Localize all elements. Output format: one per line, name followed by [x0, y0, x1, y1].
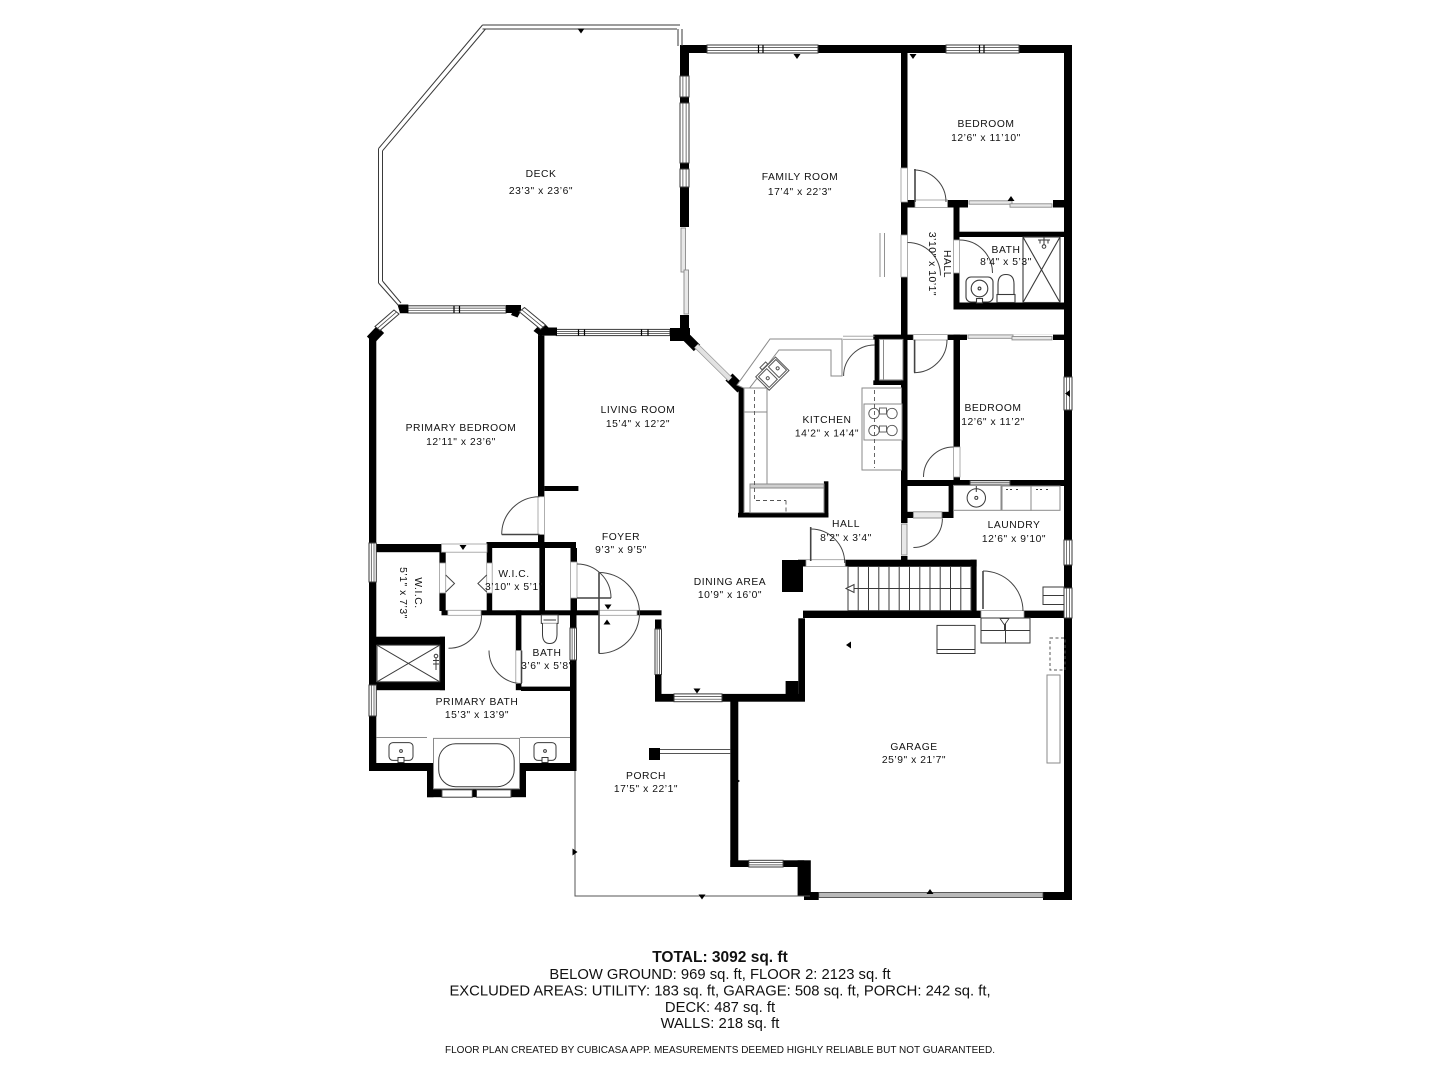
- svg-text:BATH: BATH: [533, 648, 562, 659]
- svg-text:FOYER: FOYER: [602, 532, 640, 543]
- svg-text:GARAGE: GARAGE: [890, 742, 937, 753]
- svg-text:12’11" x 23’6": 12’11" x 23’6": [426, 437, 496, 448]
- svg-text:W.I.C.: W.I.C.: [412, 577, 423, 608]
- svg-text:HALL: HALL: [941, 250, 952, 278]
- svg-text:15’4" x 12’2": 15’4" x 12’2": [606, 419, 670, 430]
- svg-text:WALLS: 218 sq. ft: WALLS: 218 sq. ft: [661, 1016, 780, 1032]
- svg-text:12’6" x 11’2": 12’6" x 11’2": [961, 417, 1025, 428]
- svg-text:17’4" x 22’3": 17’4" x 22’3": [768, 187, 832, 198]
- svg-text:14’2" x 14’4": 14’2" x 14’4": [795, 429, 859, 440]
- svg-text:BEDROOM: BEDROOM: [964, 403, 1021, 414]
- svg-text:BELOW GROUND: 969 sq. ft, FLOO: BELOW GROUND: 969 sq. ft, FLOOR 2: 2123 …: [549, 967, 890, 983]
- svg-text:10’9" x 16’0": 10’9" x 16’0": [698, 590, 762, 601]
- svg-text:5’1" x 7’3": 5’1" x 7’3": [397, 567, 408, 619]
- svg-text:9’3" x 9’5": 9’3" x 9’5": [595, 545, 647, 556]
- svg-text:3’6" x 5’8": 3’6" x 5’8": [521, 661, 573, 672]
- svg-text:W.I.C.: W.I.C.: [498, 569, 529, 580]
- svg-text:EXCLUDED AREAS: UTILITY: 183 s: EXCLUDED AREAS: UTILITY: 183 sq. ft, GAR…: [449, 984, 990, 1000]
- svg-text:PORCH: PORCH: [626, 771, 666, 782]
- svg-text:8’4" x 5’3": 8’4" x 5’3": [980, 257, 1032, 268]
- svg-text:3’10" x 5’1": 3’10" x 5’1": [485, 582, 543, 593]
- svg-text:FLOOR PLAN CREATED BY CUBICASA: FLOOR PLAN CREATED BY CUBICASA APP. MEAS…: [445, 1045, 995, 1056]
- svg-text:DECK: DECK: [526, 169, 557, 180]
- svg-text:25’9" x 21’7": 25’9" x 21’7": [882, 755, 946, 766]
- svg-text:BATH: BATH: [992, 245, 1021, 256]
- svg-text:12’6" x 9’10": 12’6" x 9’10": [982, 534, 1046, 545]
- svg-text:PRIMARY BEDROOM: PRIMARY BEDROOM: [406, 423, 517, 434]
- svg-text:12’6" x 11’10": 12’6" x 11’10": [951, 133, 1021, 144]
- svg-text:LIVING ROOM: LIVING ROOM: [601, 405, 676, 416]
- svg-text:8’2" x 3’4": 8’2" x 3’4": [820, 533, 872, 544]
- svg-text:BEDROOM: BEDROOM: [957, 119, 1014, 130]
- svg-text:17’5" x 22’1": 17’5" x 22’1": [614, 784, 678, 795]
- svg-text:TOTAL: 3092 sq. ft: TOTAL: 3092 sq. ft: [652, 949, 788, 966]
- svg-text:KITCHEN: KITCHEN: [802, 415, 851, 426]
- svg-text:23’3" x 23’6": 23’3" x 23’6": [509, 186, 573, 197]
- svg-text:3’10" x 10’1": 3’10" x 10’1": [926, 232, 937, 296]
- svg-text:15’3" x 13’9": 15’3" x 13’9": [445, 710, 509, 721]
- svg-text:DECK: 487 sq. ft: DECK: 487 sq. ft: [665, 1000, 775, 1016]
- svg-text:PRIMARY BATH: PRIMARY BATH: [436, 697, 519, 708]
- svg-text:LAUNDRY: LAUNDRY: [988, 520, 1041, 531]
- svg-text:HALL: HALL: [832, 519, 860, 530]
- svg-text:FAMILY ROOM: FAMILY ROOM: [762, 172, 839, 183]
- svg-text:DINING AREA: DINING AREA: [694, 577, 766, 588]
